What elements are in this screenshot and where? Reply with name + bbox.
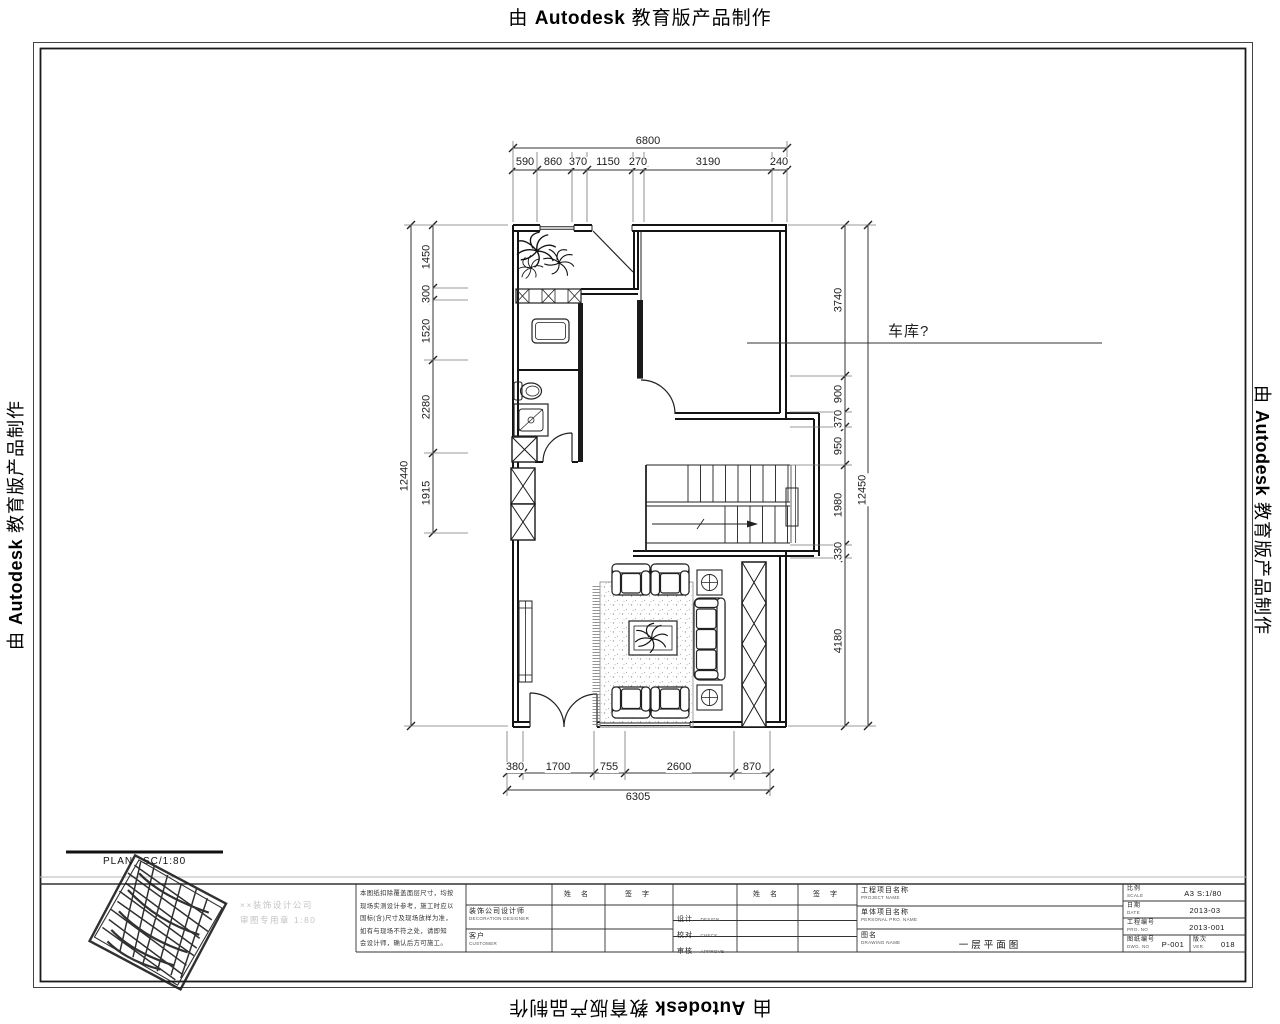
dim-right-seg: 950 (834, 436, 845, 456)
version-sub: VER. (1193, 944, 1207, 949)
project-sub: PROJECT NAME (861, 895, 909, 900)
drawing-name-cell: 图名 DRAWING NAME (861, 932, 900, 945)
version-value: 018 (1221, 940, 1235, 949)
dim-left-seg: 1450 (422, 244, 433, 270)
dim-right-seg: 370 (834, 409, 845, 429)
dim-bottom-total: 6305 (625, 792, 651, 803)
scale-cell: 比例 SCALE (1127, 886, 1143, 898)
dim-bottom-seg: 380 (505, 762, 525, 773)
date-cell: 日期 DATE (1127, 903, 1141, 915)
drawing-name-sub: DRAWING NAME (861, 940, 900, 945)
dim-right-total: 12450 (858, 474, 869, 507)
dim-top-seg: 590 (515, 157, 535, 168)
dim-right-seg: 3740 (834, 287, 845, 313)
drawing-canvas (0, 0, 1280, 1024)
unit-sub: PERSONAL PRO. NAME (861, 917, 917, 922)
drawing-no-sub: DWG. NO (1127, 944, 1155, 949)
client-cell: 客户 CUSTOMER (469, 933, 497, 946)
check-sub: CHECK (700, 933, 717, 938)
company-watermark: ××装饰设计公司 审图专用章 1:80 (240, 898, 316, 928)
sheet-frame (34, 43, 1253, 988)
stairs-direction-arrow (747, 521, 758, 528)
side-table-top (697, 570, 722, 595)
kitchen-table (532, 319, 569, 343)
dim-top-seg: 240 (769, 157, 789, 168)
dim-left-total: 12440 (400, 460, 411, 493)
dim-left-seg: 1915 (422, 480, 433, 506)
designer-cell: 装饰公司设计师 DECORATION DESIGNER (469, 908, 529, 921)
edu-banner-left: 由 Autodesk 教育版产品制作 (2, 400, 28, 650)
sign-header: 签 字 (813, 889, 841, 899)
dim-top-seg: 1150 (595, 157, 621, 168)
dim-bottom-seg: 1700 (545, 762, 571, 773)
floorplan (511, 225, 819, 727)
designer-sub: DECORATION DESIGNER (469, 916, 529, 921)
project-no-value: 2013-001 (1189, 923, 1225, 932)
approve-cell: 审核 APPROVE (677, 940, 724, 958)
sofa-triple (694, 598, 725, 680)
designer-label: 装饰公司设计师 (469, 908, 529, 916)
dim-right-seg: 330 (834, 541, 845, 561)
porch-plants (514, 232, 579, 284)
dim-top-total: 6800 (635, 136, 661, 147)
dim-top-seg: 3190 (695, 157, 721, 168)
edu-banner-bottom: 由 Autodesk 教育版产品制作 (508, 996, 771, 1023)
banner-suffix: 教育版产品制作 (508, 997, 648, 1018)
client-sub: CUSTOMER (469, 941, 497, 946)
garage-room-label: 车库? (888, 320, 929, 341)
side-table-bottom (697, 685, 722, 710)
project-no-sub: PRO. NO (1127, 927, 1155, 932)
sofa-set (612, 564, 725, 718)
version-cell: 版次 VER. (1193, 937, 1207, 949)
note-line: 会设计师，确认后方可施工。 (360, 938, 462, 951)
edu-banner-right: 由 Autodesk 教育版产品制作 (1250, 385, 1276, 635)
note-line: 如有与现场不符之处，请即知 (360, 926, 462, 939)
note-line: 现场实测设计参考，施工时应以 (360, 901, 462, 914)
unit-label: 单体项目名称 (861, 909, 917, 917)
wall-poche (578, 300, 643, 462)
note-line: 本图纸扣除覆盖面层尺寸，均按 (360, 888, 462, 901)
banner-suffix: 教育版产品制作 (6, 400, 26, 533)
drawing-name-value: 一层平面图 (959, 937, 1022, 951)
project-name-cell: 工程项目名称 PROJECT NAME (861, 887, 909, 900)
dim-bottom-seg: 870 (742, 762, 762, 773)
stairs (646, 465, 798, 551)
name-header: 姓 名 (564, 889, 592, 899)
approve-sub: APPROVE (700, 949, 724, 954)
note-line: 国标(含)尺寸及现场放样为准， (360, 913, 462, 926)
banner-prefix: 由 (752, 997, 772, 1018)
date-value: 2013-03 (1189, 906, 1220, 915)
shaft-boxes (511, 437, 537, 540)
sign-header: 签 字 (625, 889, 653, 899)
dim-bottom-seg: 2600 (666, 762, 692, 773)
company-stamp (90, 855, 226, 989)
company-watermark-line: ××装饰设计公司 (240, 900, 313, 910)
titleblock-notes: 本图纸扣除覆盖面层尺寸，均按 现场实测设计参考，施工时应以 国标(含)尺寸及现场… (360, 888, 462, 951)
approve-label: 审核 (677, 948, 693, 955)
drawing-no-label: 图纸编号 (1127, 937, 1155, 944)
banner-prefix: 由 (6, 631, 26, 650)
dim-top-seg: 370 (568, 157, 588, 168)
project-no-label: 工程编号 (1127, 920, 1155, 927)
lattice-strip (742, 562, 766, 727)
banner-brand: Autodesk (535, 8, 626, 29)
banner-brand: Autodesk (6, 539, 26, 625)
banner-suffix: 教育版产品制作 (1252, 502, 1272, 635)
dim-left-seg: 300 (422, 284, 433, 304)
window-band (516, 289, 581, 303)
project-no-cell: 工程编号 PRO. NO (1127, 920, 1155, 932)
banner-prefix: 由 (508, 8, 528, 29)
vanity-sink (514, 404, 548, 436)
client-label: 客户 (469, 933, 497, 941)
drawing-name-label: 图名 (861, 932, 900, 940)
left-window-cabinet (519, 601, 532, 682)
dim-bottom-seg: 755 (599, 762, 619, 773)
dim-left-seg: 2280 (422, 394, 433, 420)
name-header: 姓 名 (753, 889, 781, 899)
banner-suffix: 教育版产品制作 (632, 8, 772, 29)
check-label: 校对 (677, 932, 693, 939)
design-sub: DESIGN (700, 917, 719, 922)
drawing-no-cell: 图纸编号 DWG. NO (1127, 937, 1155, 949)
dim-right-seg: 900 (834, 384, 845, 404)
scale-sub: SCALE (1127, 893, 1143, 898)
version-label: 版次 (1193, 937, 1207, 944)
cad-floorplan-page: { "banner": { "prefix": "由", "brand": "A… (0, 0, 1280, 1024)
dim-top-seg: 270 (628, 157, 648, 168)
banner-prefix: 由 (1252, 385, 1272, 404)
drawing-no-value: P-001 (1162, 940, 1185, 949)
scale-label: 比例 (1127, 886, 1143, 893)
date-label: 日期 (1127, 903, 1141, 910)
banner-brand: Autodesk (1252, 410, 1272, 496)
dim-top-seg: 860 (543, 157, 563, 168)
scale-value: A3 S:1/80 (1184, 889, 1221, 898)
banner-brand: Autodesk (655, 997, 746, 1018)
project-label: 工程项目名称 (861, 887, 909, 895)
unit-name-cell: 单体项目名称 PERSONAL PRO. NAME (861, 909, 917, 922)
company-watermark-line: 审图专用章 1:80 (240, 915, 316, 925)
plan-tag-label: PLAN (103, 856, 133, 867)
dim-right-seg: 1980 (834, 492, 845, 518)
dim-right-seg: 4180 (834, 628, 845, 654)
design-label: 设计 (677, 916, 693, 923)
plan-tag-scale: SC/1:80 (143, 856, 186, 867)
dim-left-seg: 1520 (422, 318, 433, 344)
date-sub: DATE (1127, 910, 1141, 915)
edu-banner-top: 由 Autodesk 教育版产品制作 (508, 3, 771, 30)
